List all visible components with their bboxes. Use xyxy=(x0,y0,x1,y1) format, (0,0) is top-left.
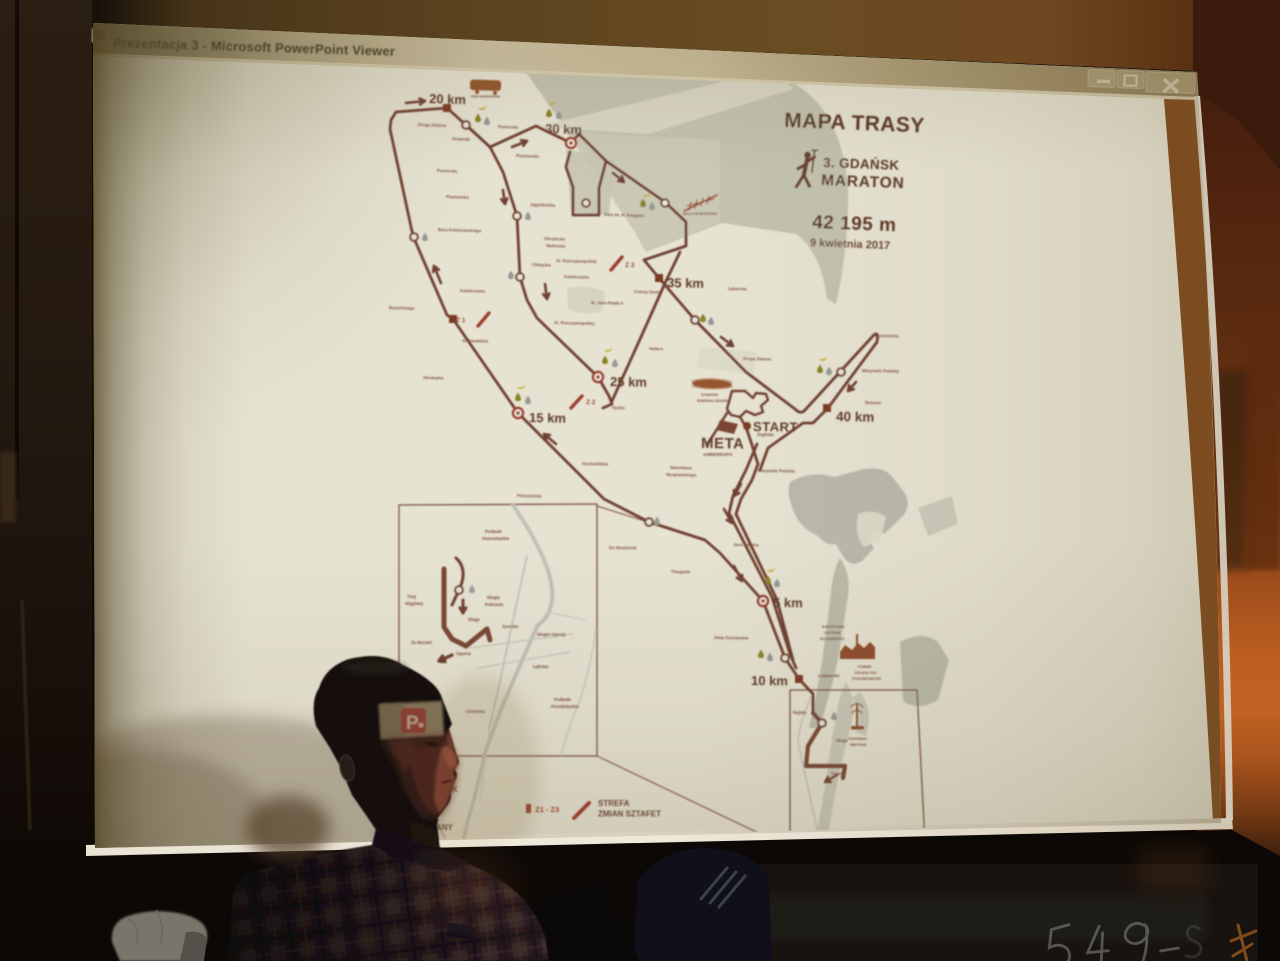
svg-text:P: P xyxy=(406,713,419,734)
